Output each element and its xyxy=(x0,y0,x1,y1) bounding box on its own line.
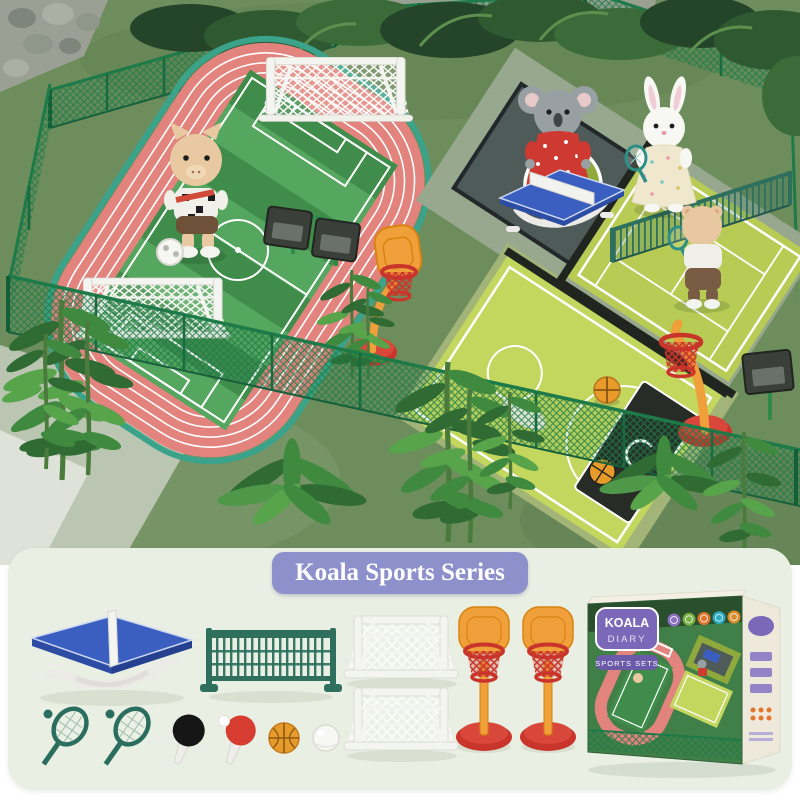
shuttlecock-icon xyxy=(713,611,726,624)
playset-scene xyxy=(0,0,800,565)
basketball-on-court xyxy=(594,377,620,406)
table-tennis-table-item xyxy=(22,598,200,710)
product-image: Koala Sports Series xyxy=(0,0,800,800)
tennis-net-item xyxy=(200,618,342,706)
product-panel: Koala Sports Series xyxy=(8,548,792,790)
box-logo-line1: KOALA xyxy=(605,616,649,630)
basketball-hoop-stand-item xyxy=(452,603,516,755)
soccer-goal-item xyxy=(342,682,462,764)
white-ball-item xyxy=(310,722,342,754)
soccer-ball-icon xyxy=(728,611,741,624)
volleyball-icon xyxy=(668,614,681,627)
series-title: Koala Sports Series xyxy=(295,559,505,586)
soccer-goal-top xyxy=(259,57,413,121)
series-banner: Koala Sports Series xyxy=(272,552,528,594)
table-tennis-paddle-item xyxy=(214,710,260,770)
soccer-ball xyxy=(157,239,183,265)
basketball-hoop-stand-item xyxy=(516,603,580,755)
product-box: KOALA DIARY SPORTS SETS xyxy=(580,582,792,780)
basketball-icon xyxy=(698,612,711,625)
tennis-racket-item xyxy=(34,702,92,776)
box-logo-line2: DIARY xyxy=(608,634,647,645)
soccer-goal-item xyxy=(342,610,462,692)
box-subtitle: SPORTS SETS xyxy=(595,659,658,668)
basketball-item xyxy=(266,720,302,756)
table-tennis-paddle-item xyxy=(160,710,212,768)
tennis-ball-icon xyxy=(683,613,696,626)
tennis-racket-item xyxy=(96,702,154,776)
